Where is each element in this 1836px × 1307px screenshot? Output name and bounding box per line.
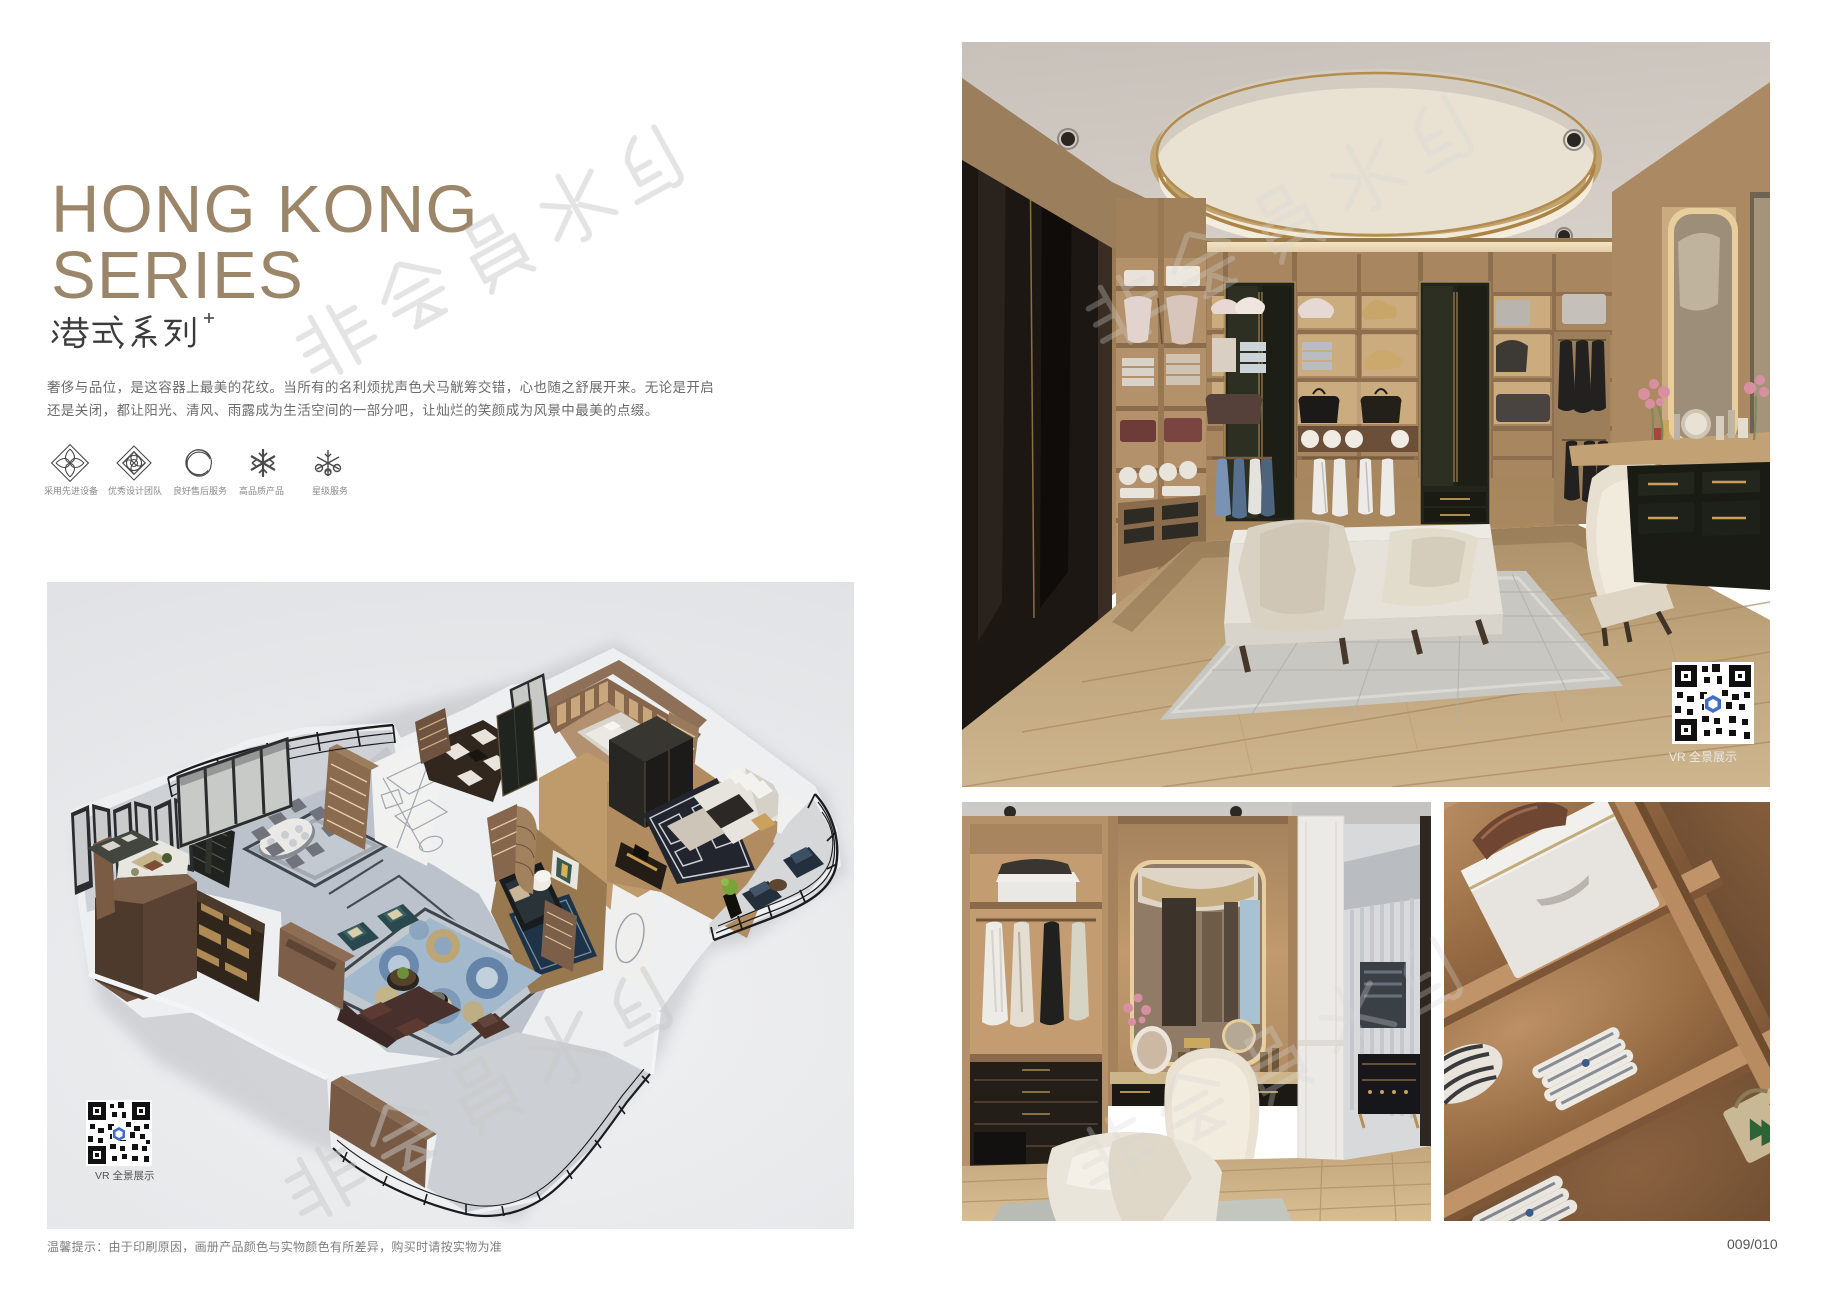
svg-text:VR 全景展示: VR 全景展示	[1669, 749, 1737, 764]
svg-text:VR 全景展示: VR 全景展示	[95, 1169, 155, 1182]
